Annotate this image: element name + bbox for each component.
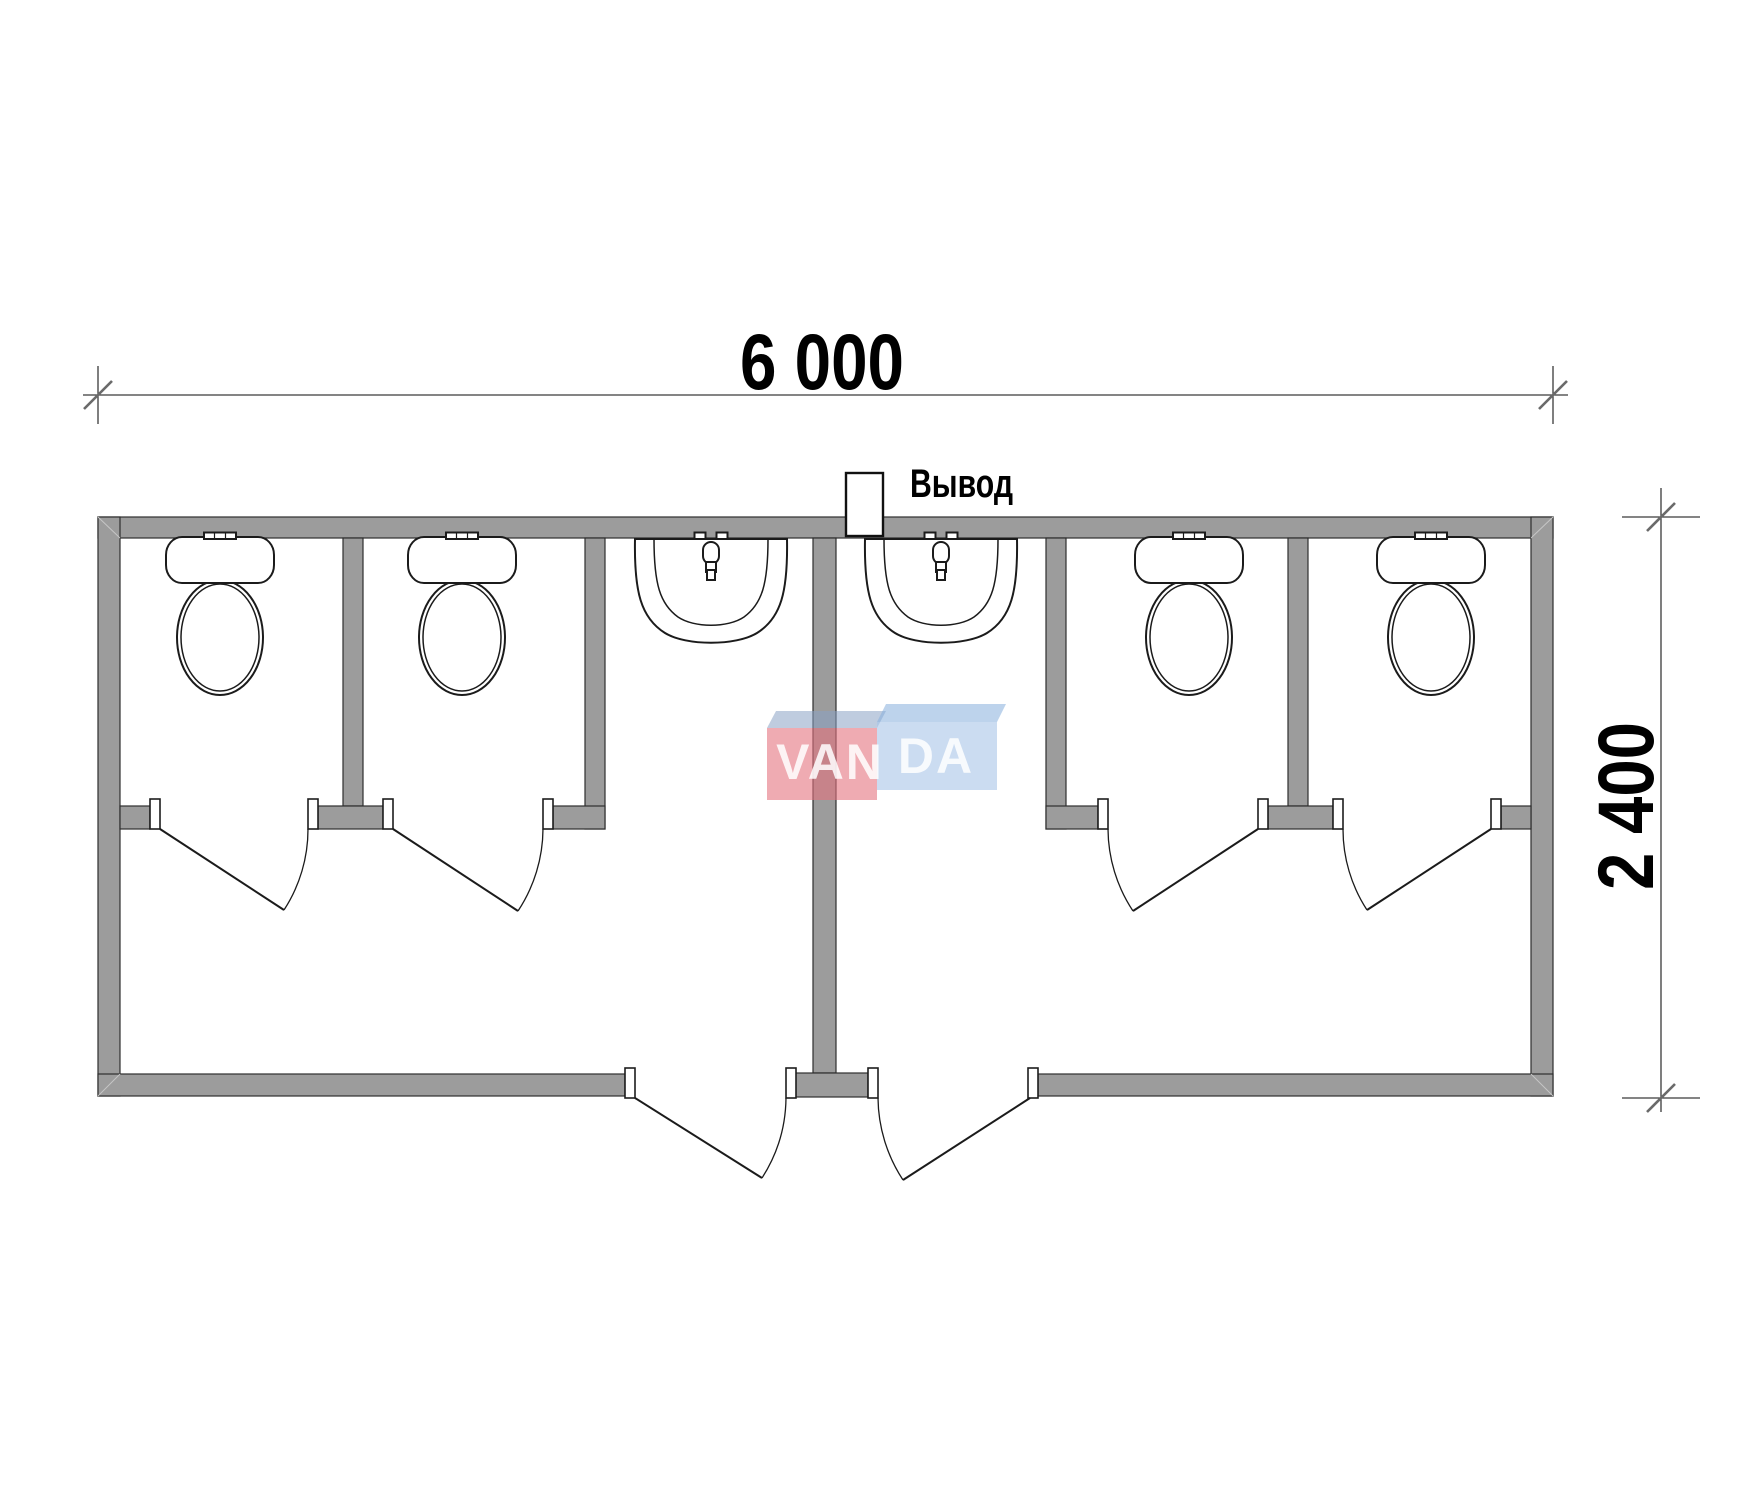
stall-front-wall-right-b [1501,806,1531,829]
jamb [383,799,393,829]
floor-plan-page: Вывод 6 000 2 400 VAN DA [0,0,1763,1503]
central-partition [813,538,836,1073]
dimension-horizontal: 6 000 [83,317,1568,424]
height-dimension-label: 2 400 [1581,722,1670,890]
door-swing-arc [284,829,308,910]
door-leaf [903,1098,1030,1180]
logo-red-box-top-face [767,711,886,728]
door-stall-3 [1108,829,1258,911]
door-swing-arc [762,1098,786,1178]
partition-washroom-right-stall3 [1046,538,1066,829]
outlet-box [846,473,883,536]
partition-stall3-stall4-tee [1268,806,1333,829]
door-leaf [160,829,284,910]
sink-right-washroom [865,533,1017,643]
dimension-vertical: 2 400 [1581,488,1700,1112]
toilet-2 [408,533,516,696]
outer-wall-left [98,517,120,1096]
logo-text-right: DA [898,728,974,784]
toilet-3 [1135,533,1243,696]
logo-blue-box-top-face [877,704,1006,722]
door-leaf [393,829,518,911]
outlet-label: Вывод [910,462,1013,506]
jamb [1028,1068,1038,1098]
jamb [150,799,160,829]
jamb [786,1068,796,1098]
door-swing-arc [1343,829,1367,910]
entrance-door-left [635,1098,786,1178]
door-swing-arc [878,1098,903,1180]
outer-wall-bottom-right [1038,1074,1553,1096]
width-dimension-label: 6 000 [740,317,904,406]
jamb [1258,799,1268,829]
jamb [543,799,553,829]
door-stall-1 [160,829,308,910]
outer-wall-top [98,517,1553,538]
floor-plan-drawing: Вывод 6 000 2 400 VAN DA [0,0,1763,1503]
toilet-4 [1377,533,1485,696]
partition-stall2-washroom-left [585,538,605,829]
jamb [1098,799,1108,829]
logo-text-left: VAN [776,734,884,790]
jamb [308,799,318,829]
partition-stall3-stall4 [1288,538,1308,806]
partition-stall1-stall2-tee [318,806,383,829]
door-swing-arc [1108,829,1133,911]
entrance-door-right [878,1098,1030,1180]
toilet-1 [166,533,274,696]
jamb [625,1068,635,1098]
outer-wall-bottom-left [98,1074,625,1096]
jamb [868,1068,878,1098]
partition-stall1-stall2 [343,538,363,806]
door-stall-2 [393,829,543,911]
jamb [1491,799,1501,829]
stall-front-wall-left-b [553,806,605,829]
sink-left-washroom [635,533,787,643]
stall-front-wall-left-a [120,806,150,829]
central-partition-tee [795,1073,868,1097]
door-stall-4 [1343,829,1491,910]
door-leaf [635,1098,762,1178]
jamb [1333,799,1343,829]
door-swing-arc [518,829,543,911]
door-leaf [1367,829,1491,910]
door-leaf [1133,829,1258,911]
stall-front-wall-right-a [1046,806,1098,829]
outer-wall-right [1531,517,1553,1096]
vanda-watermark: VAN DA [767,704,1006,800]
